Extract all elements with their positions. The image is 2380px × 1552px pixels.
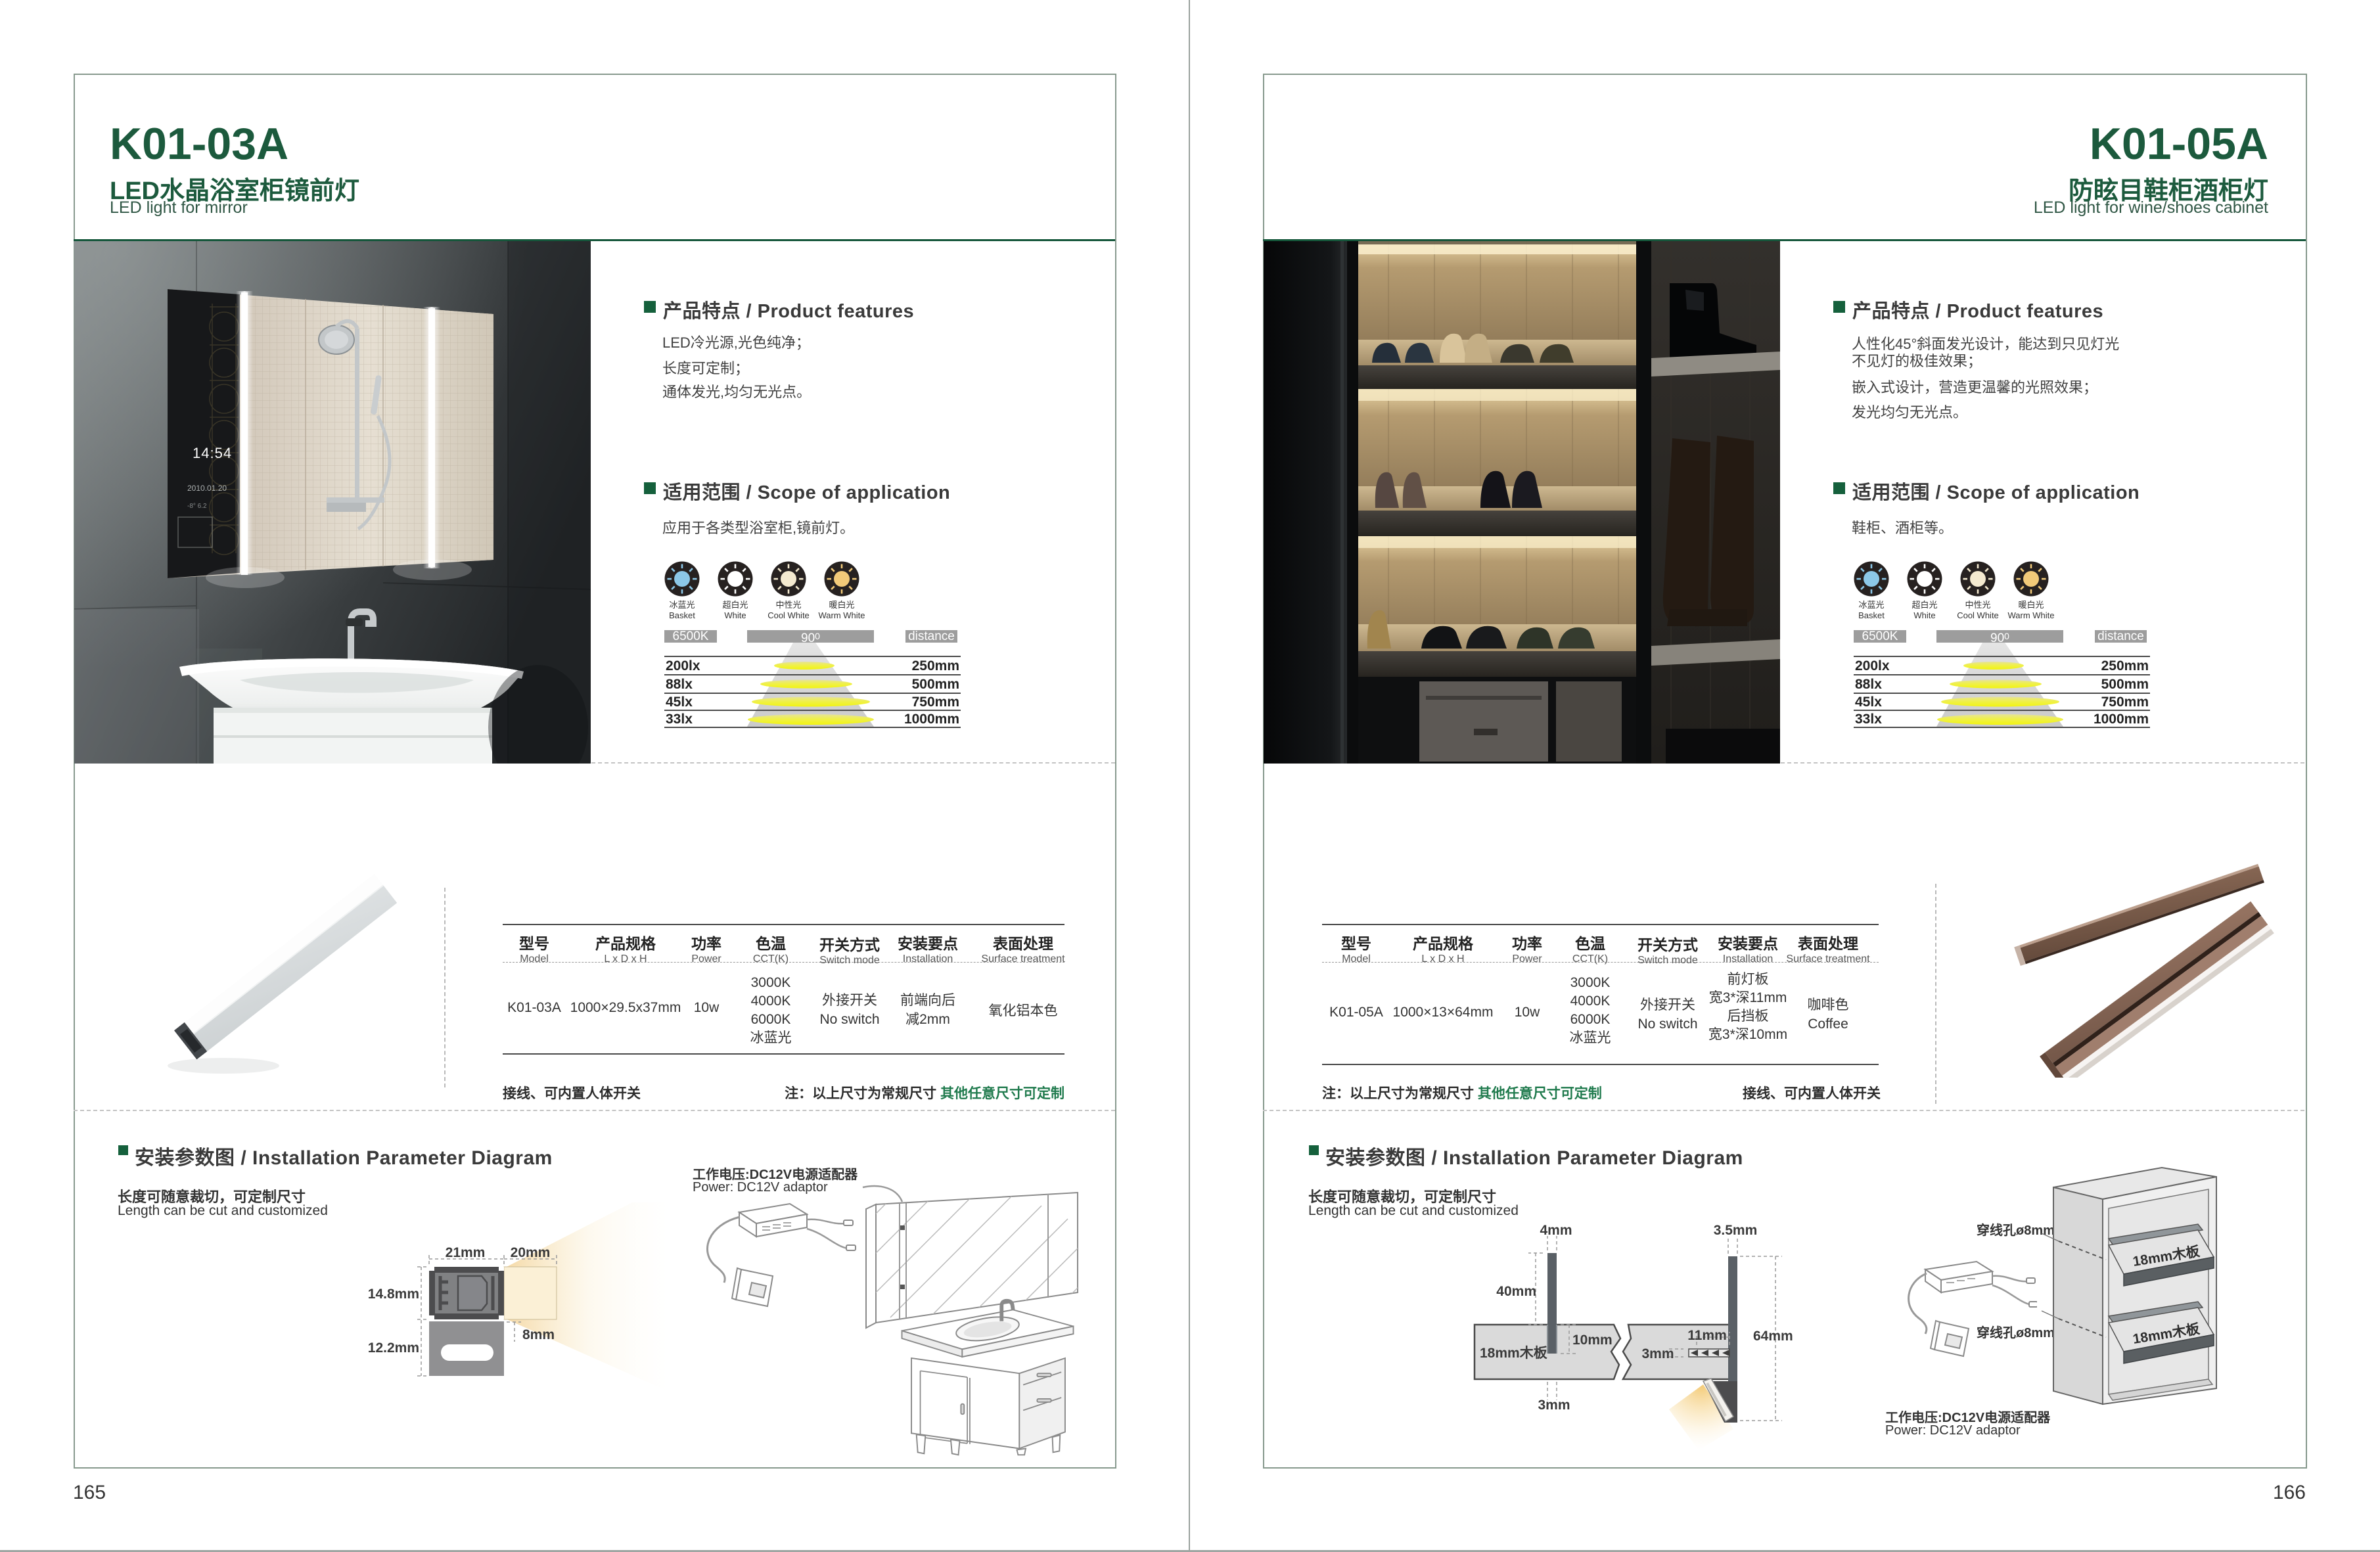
svg-text:3mm: 3mm: [1641, 1346, 1674, 1361]
svg-text:2010.01.20: 2010.01.20: [187, 484, 227, 493]
svg-text:3mm: 3mm: [1538, 1398, 1570, 1413]
svg-text:4mm: 4mm: [1540, 1223, 1572, 1238]
svg-text:64mm: 64mm: [1753, 1329, 1793, 1344]
svg-text:3.5mm: 3.5mm: [1714, 1223, 1758, 1238]
svg-text:20mm: 20mm: [511, 1245, 551, 1260]
svg-text:14:54: 14:54: [193, 445, 232, 461]
svg-text:12.2mm: 12.2mm: [368, 1340, 419, 1356]
svg-text:18mm木板: 18mm木板: [1480, 1346, 1548, 1361]
svg-text:8mm: 8mm: [522, 1327, 555, 1342]
svg-text:21mm: 21mm: [446, 1245, 486, 1260]
svg-text:11mm: 11mm: [1687, 1328, 1727, 1343]
svg-text:-8° 6.2: -8° 6.2: [187, 503, 207, 510]
svg-text:40mm: 40mm: [1496, 1284, 1536, 1299]
svg-text:14.8mm: 14.8mm: [368, 1287, 419, 1302]
svg-text:10mm: 10mm: [1572, 1333, 1613, 1348]
